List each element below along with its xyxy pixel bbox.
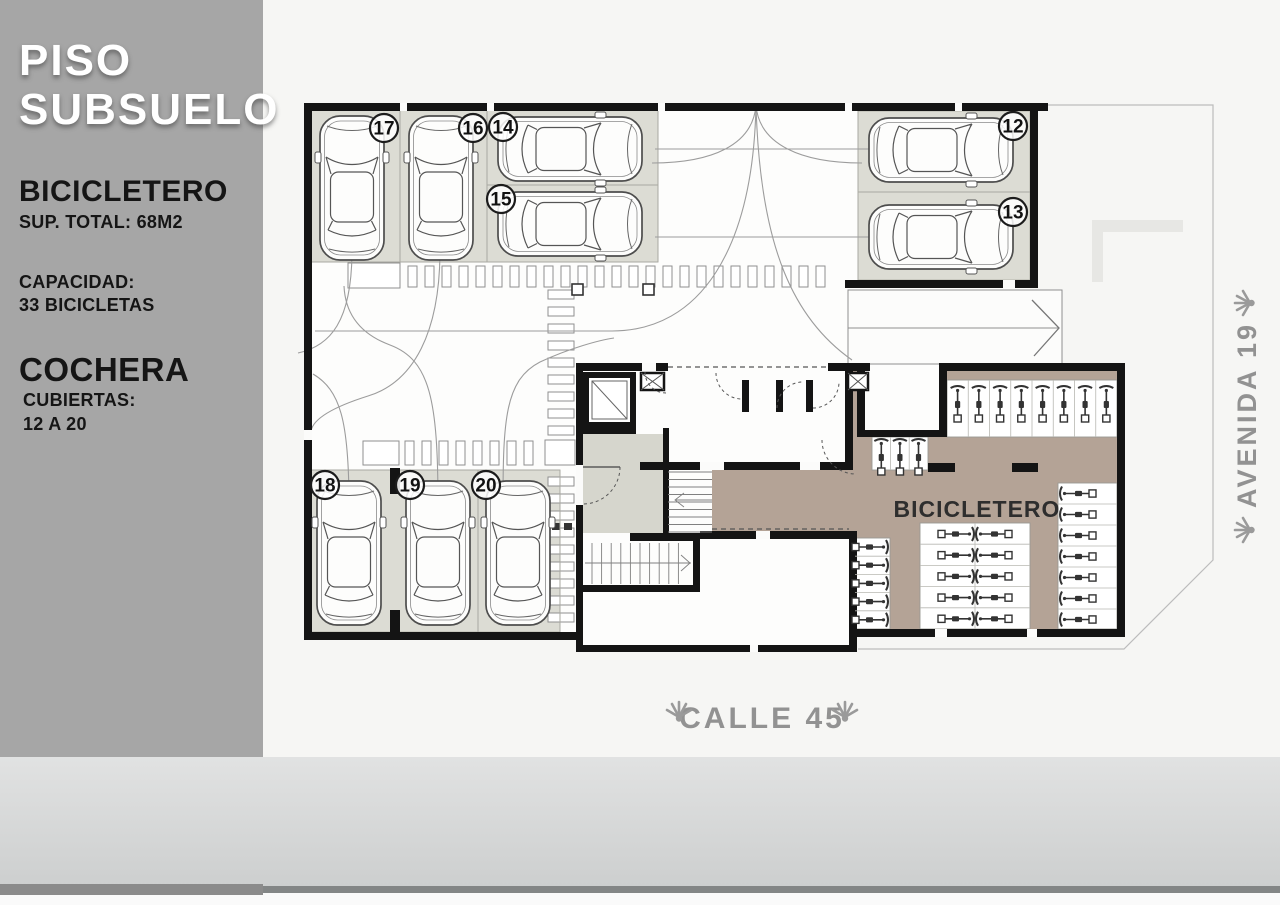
svg-text:14: 14 <box>492 118 514 139</box>
page-title-line1: PISO <box>19 36 253 85</box>
svg-text:15: 15 <box>490 190 512 211</box>
parking-spot-badge: 17 <box>370 114 398 142</box>
parking-spot-badge: 13 <box>999 198 1027 226</box>
street-label-avenida19: AVENIDA 19 <box>1232 322 1262 508</box>
capacity-section: CAPACIDAD: 33 BICICLETAS <box>19 271 253 318</box>
covered-label: CUBIERTAS: <box>23 389 253 412</box>
svg-text:18: 18 <box>314 476 335 497</box>
page: { "sidebar": { "title_line1": "PISO", "t… <box>0 0 1280 905</box>
capacity-value: 33 BICICLETAS <box>19 294 253 317</box>
cochera-title: COCHERA <box>19 351 253 389</box>
svg-text:13: 13 <box>1002 203 1023 224</box>
svg-text:19: 19 <box>399 476 420 497</box>
parking-spot-badge: 18 <box>311 471 339 499</box>
svg-text:12: 12 <box>1002 117 1023 138</box>
parking-spot-badge: 12 <box>999 112 1027 140</box>
parking-spot-badge: 16 <box>459 114 487 142</box>
bicicletero-surface: SUP. TOTAL: 68M2 <box>19 212 253 233</box>
parking-spot-badge: 14 <box>489 113 517 141</box>
page-title: PISO SUBSUELO <box>19 36 253 135</box>
sidebar: PISO SUBSUELO BICICLETERO SUP. TOTAL: 68… <box>0 0 263 757</box>
bicicletero-section: BICICLETERO SUP. TOTAL: 68M2 <box>19 175 253 233</box>
cochera-section: COCHERA CUBIERTAS: 12 A 20 <box>19 351 253 436</box>
vehicle-ramp <box>848 290 1062 364</box>
svg-text:17: 17 <box>373 119 394 140</box>
podium-shadow-edge-left <box>0 884 263 895</box>
covered-value: 12 A 20 <box>23 413 253 436</box>
svg-text:16: 16 <box>462 119 483 140</box>
parking-spot-badge: 15 <box>487 185 515 213</box>
capacity-label: CAPACIDAD: <box>19 271 253 294</box>
parking-spot-badge: 20 <box>472 471 500 499</box>
podium-band <box>0 757 1280 886</box>
bicicletero-area-label: BICICLETERO <box>894 496 1061 522</box>
street-label-calle45: CALLE 45 <box>679 702 845 735</box>
page-title-line2: SUBSUELO <box>19 85 253 134</box>
svg-text:20: 20 <box>475 476 496 497</box>
parking-spot-badge: 19 <box>396 471 424 499</box>
bicicletero-title: BICICLETERO <box>19 175 253 208</box>
